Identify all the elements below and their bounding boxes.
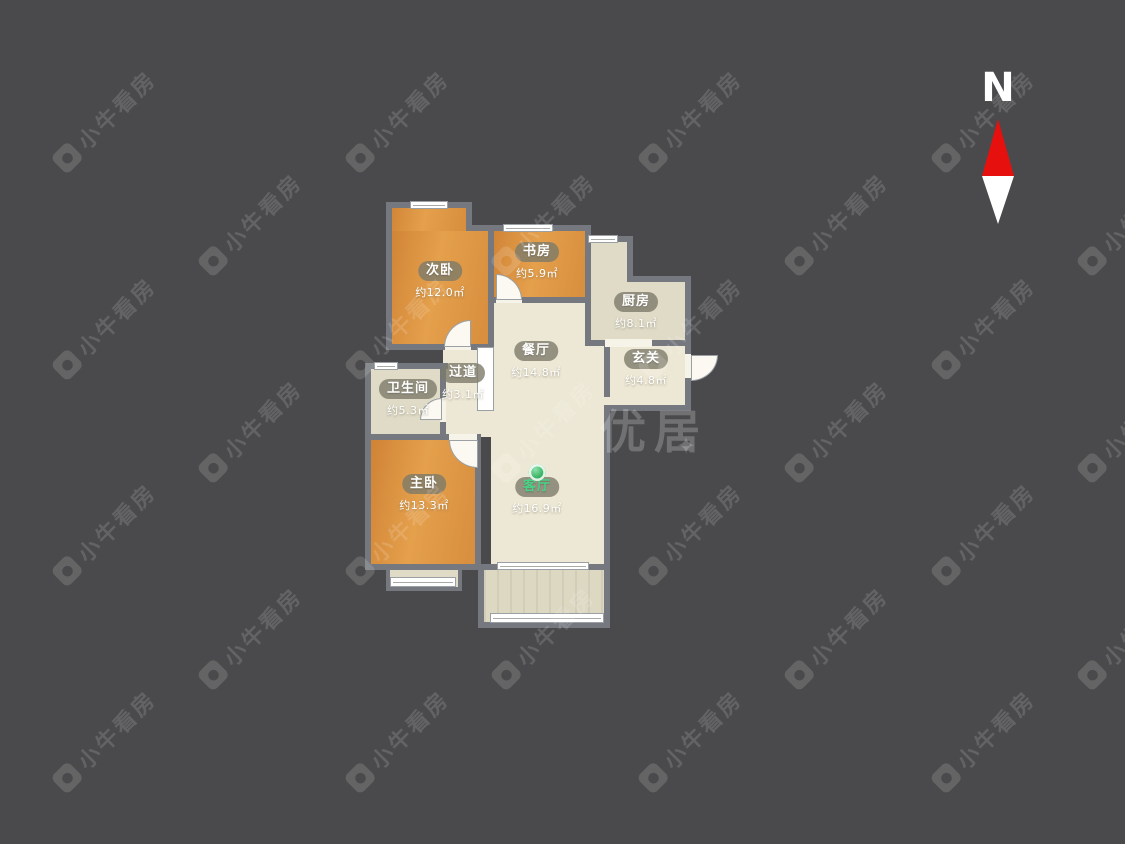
window	[390, 577, 456, 587]
room-label-dining: 餐厅 约14.8㎡	[511, 341, 561, 380]
room-area: 约14.8㎡	[511, 364, 561, 380]
wall-segment	[627, 276, 691, 282]
location-pin-icon	[529, 464, 546, 481]
room-name: 过道	[441, 363, 485, 383]
room-name: 卫生间	[379, 379, 437, 399]
room-name: 餐厅	[514, 341, 558, 361]
north-label: N	[976, 66, 1020, 110]
window	[588, 235, 618, 243]
wall-segment	[604, 564, 610, 628]
compass-needle-icon	[978, 116, 1018, 226]
room-name: 主卧	[402, 474, 446, 494]
wall-segment	[604, 405, 610, 570]
window	[490, 613, 604, 623]
room-area: 约4.8㎡	[625, 372, 667, 388]
room-label-foyer: 玄关 约4.8㎡	[624, 349, 668, 388]
room-label-bathroom: 卫生间 约5.3㎡	[379, 379, 437, 418]
room-name: 书房	[515, 242, 559, 262]
room-label-kitchen: 厨房 约8.1㎡	[614, 292, 658, 331]
room-name: 次卧	[418, 261, 462, 281]
wall-segment	[368, 564, 480, 570]
room-label-study: 书房 约5.9㎡	[515, 242, 559, 281]
window	[374, 362, 398, 370]
wall-segment	[685, 378, 691, 411]
room-area: 约3.1㎡	[442, 386, 484, 402]
window	[410, 201, 448, 209]
wall-segment	[458, 567, 462, 591]
wall-segment	[685, 276, 691, 354]
room-area: 约13.3㎡	[399, 497, 449, 513]
wall-segment	[386, 587, 462, 591]
room-label-living-room: 客厅 约16.9㎡	[512, 477, 562, 516]
door-arc	[691, 355, 718, 381]
room-label-bedroom2: 次卧 约12.0㎡	[415, 261, 465, 300]
wall-segment	[478, 564, 484, 628]
room-area: 约5.9㎡	[516, 265, 558, 281]
compass-north: N	[976, 66, 1020, 230]
wall-segment	[627, 236, 633, 282]
room-name: 玄关	[624, 349, 668, 369]
floor-plan: 次卧 约12.0㎡ 书房 约5.9㎡ 厨房 约8.1㎡ 餐厅 约14.8㎡ 玄关…	[0, 0, 1125, 844]
wall-segment	[488, 225, 494, 350]
room-area: 约16.9㎡	[512, 500, 562, 516]
room-name: 厨房	[614, 292, 658, 312]
window	[497, 562, 589, 570]
wall-segment	[365, 363, 371, 570]
room-area: 约5.3㎡	[387, 402, 429, 418]
room-label-hallway: 过道 约3.1㎡	[441, 363, 485, 402]
floorplan-canvas: 次卧 约12.0㎡ 书房 约5.9㎡ 厨房 约8.1㎡ 餐厅 约14.8㎡ 玄关…	[0, 0, 1125, 844]
room-label-master-bedroom: 主卧 约13.3㎡	[399, 474, 449, 513]
wall-segment	[585, 225, 591, 346]
door-opening	[605, 339, 652, 347]
room-area: 约8.1㎡	[615, 315, 657, 331]
window	[503, 224, 553, 232]
wall-segment	[604, 405, 691, 411]
wall-segment	[604, 343, 610, 397]
room-area: 约12.0㎡	[415, 284, 465, 300]
wall-segment	[386, 202, 392, 350]
